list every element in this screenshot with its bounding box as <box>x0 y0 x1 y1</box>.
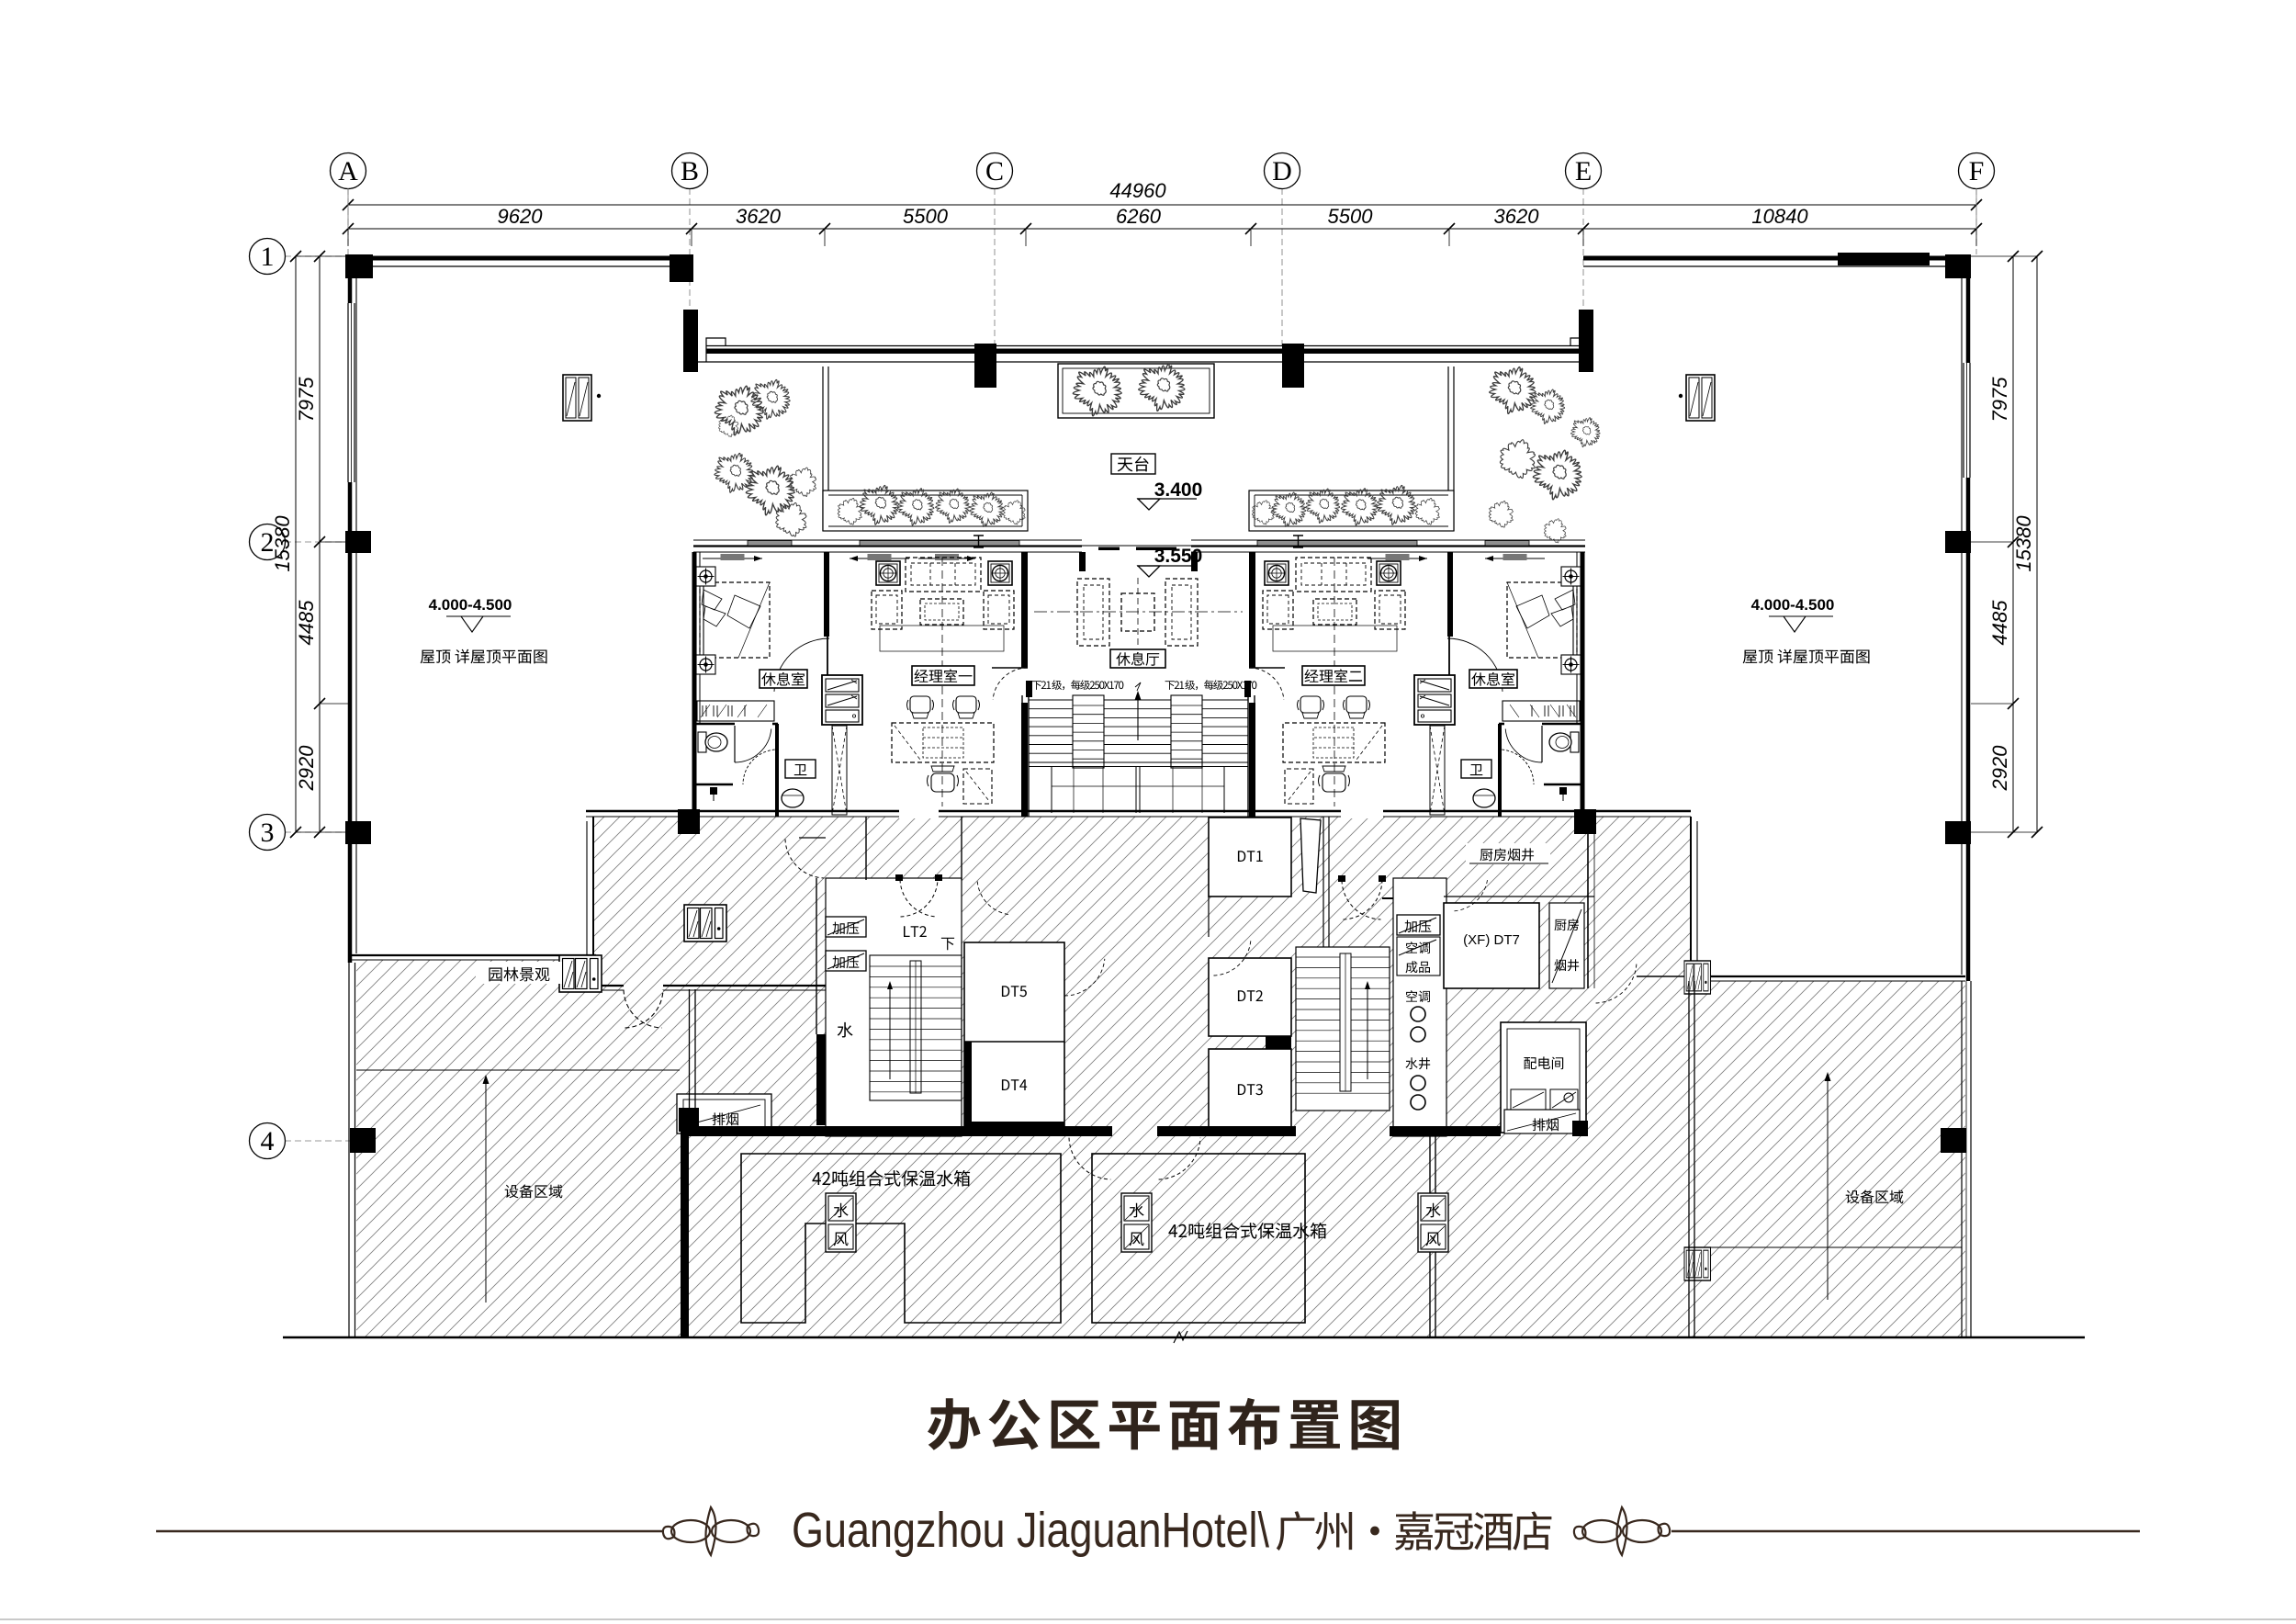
svg-text:5500: 5500 <box>903 205 949 228</box>
svg-text:F: F <box>1969 156 1985 186</box>
svg-text:3620: 3620 <box>1494 205 1540 228</box>
svg-text:3.400: 3.400 <box>1154 479 1203 501</box>
svg-text:5500: 5500 <box>1328 205 1374 228</box>
svg-text:15380: 15380 <box>2012 515 2035 572</box>
svg-text:3: 3 <box>261 818 275 848</box>
svg-text:10840: 10840 <box>1751 205 1808 228</box>
svg-text:2920: 2920 <box>295 745 318 792</box>
svg-text:15380: 15380 <box>271 515 294 572</box>
svg-text:4.000-4.500: 4.000-4.500 <box>1751 596 1835 614</box>
svg-text:7975: 7975 <box>1988 377 2011 423</box>
svg-text:B: B <box>681 156 699 186</box>
svg-text:C: C <box>985 156 1004 186</box>
svg-text:4485: 4485 <box>295 600 318 646</box>
svg-text:4: 4 <box>261 1126 275 1156</box>
svg-text:4485: 4485 <box>1988 600 2011 646</box>
svg-text:6260: 6260 <box>1116 205 1162 228</box>
svg-text:A: A <box>338 156 358 186</box>
svg-text:(XF) DT7: (XF) DT7 <box>1463 932 1520 948</box>
svg-text:3620: 3620 <box>736 205 782 228</box>
svg-text:E: E <box>1575 156 1592 186</box>
svg-text:Guangzhou JiaguanHotel\: Guangzhou JiaguanHotel\ <box>792 1503 1269 1558</box>
svg-text:2920: 2920 <box>1988 745 2011 792</box>
svg-text:3.550: 3.550 <box>1154 546 1203 567</box>
svg-text:7975: 7975 <box>295 377 318 423</box>
svg-text:1: 1 <box>261 242 275 272</box>
svg-text:44960: 44960 <box>1109 179 1166 202</box>
svg-text:4.000-4.500: 4.000-4.500 <box>429 596 512 614</box>
svg-text:D: D <box>1272 156 1292 186</box>
svg-text:9620: 9620 <box>498 205 544 228</box>
